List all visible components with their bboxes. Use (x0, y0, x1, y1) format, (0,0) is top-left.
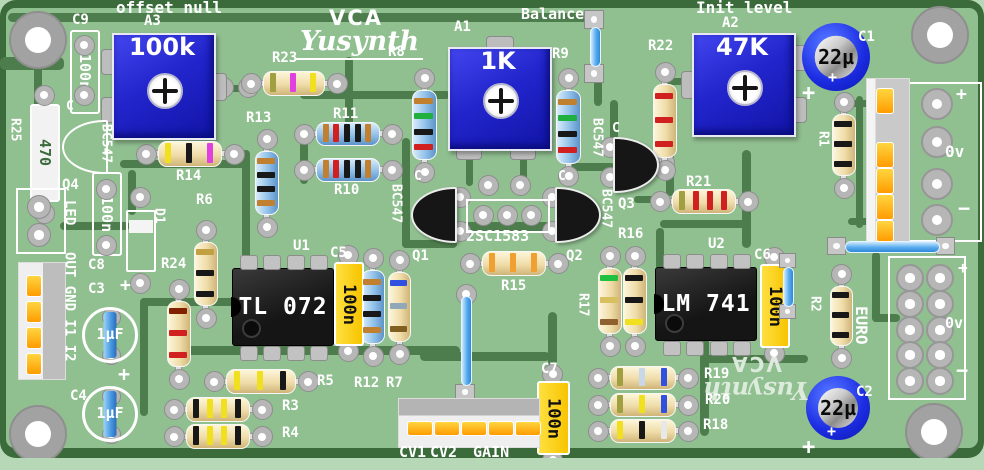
silkscreen-label: C7 (541, 362, 558, 377)
silkscreen-label: U2 (708, 237, 725, 252)
silkscreen-label: + (956, 86, 967, 105)
jumper-wire-J2 (461, 296, 472, 386)
solder-pad (625, 336, 646, 357)
component-value: 100n (98, 196, 116, 232)
capacitor-C5: 100n (334, 262, 364, 346)
resistor-stripe (363, 295, 381, 301)
resistor-stripe (558, 115, 577, 121)
solder-pad (831, 348, 852, 369)
solder-pad (204, 371, 225, 392)
solder-pad (588, 421, 609, 442)
solder-pad (252, 399, 273, 420)
silkscreen-label: R8 (388, 45, 405, 60)
trimmer-value: 100k (112, 33, 212, 61)
silkscreen-label: R13 (246, 111, 271, 126)
silkscreen-label: C (414, 170, 422, 184)
mounting-hole (9, 11, 67, 69)
silkscreen-label: C3 (88, 282, 105, 297)
solder-pad (558, 68, 579, 89)
resistor-stripe (165, 143, 171, 163)
resistor-stripe (344, 160, 350, 178)
silkscreen-label: Balance (521, 7, 584, 23)
silkscreen-label: A1 (454, 20, 471, 35)
solder-pad (389, 250, 410, 271)
resistor-stripe (625, 319, 643, 325)
connector-pin (876, 168, 894, 194)
resistor-stripe (169, 352, 187, 358)
silkscreen-label: R10 (334, 183, 359, 198)
connector-pin (461, 421, 487, 436)
resistor-stripe (693, 191, 699, 210)
resistor-stripe (707, 191, 713, 210)
euro-pad (896, 290, 924, 318)
solder-pad (257, 129, 278, 150)
resistor-stripe (510, 253, 516, 272)
ic-pin (310, 255, 328, 270)
solder-pad (363, 248, 384, 269)
silkscreen-label: CV2 (430, 445, 457, 458)
silkscreen-label: BC547 (590, 118, 604, 157)
trimmer-value: 47K (692, 33, 792, 61)
resistor-stripe (235, 426, 241, 445)
ic-pin (240, 255, 258, 270)
connector-pin (876, 220, 894, 242)
ic-label: LM 741 (656, 291, 756, 317)
solder-pad (294, 124, 315, 145)
connector-pin (488, 421, 514, 436)
resistor-stripe (363, 279, 381, 285)
connector-pin (876, 194, 894, 220)
ic-pin (686, 254, 704, 269)
capacitor-value: 100n (339, 284, 359, 325)
resistor-stripe (414, 129, 433, 135)
silkscreen-label: C8 (88, 258, 105, 273)
connector-pin (26, 301, 42, 323)
solder-pad (588, 395, 609, 416)
component-layer: VCA Yusynth Yusynth VCA 100k1K47KTL 072L… (0, 0, 984, 458)
solder-pad (294, 160, 315, 181)
euro-pad (926, 341, 954, 369)
solder-pad (196, 220, 217, 241)
silkscreen-label: R16 (618, 227, 643, 242)
copper-trace (140, 300, 148, 416)
silkscreen-label: offset null (116, 0, 222, 17)
silkscreen-label: OUT GND I1 I2 (62, 252, 77, 362)
resistor-stripe (193, 426, 199, 445)
euro-pad (896, 367, 924, 395)
silkscreen-label: R20 (705, 393, 730, 408)
solder-pad (74, 35, 95, 56)
ic-pin (733, 254, 751, 269)
ic-U1: TL 072 (232, 268, 334, 346)
resistor-stripe (290, 73, 296, 92)
solder-pad (169, 369, 190, 390)
silkscreen-label: R6 (196, 193, 213, 208)
resistor-stripe (414, 98, 433, 104)
resistor-stripe (355, 124, 361, 142)
solder-pad (473, 205, 494, 226)
resistor-stripe (600, 319, 618, 325)
silkscreen-label: D1 (152, 208, 166, 224)
resistor-stripe (617, 395, 623, 413)
resistor-stripe (221, 426, 227, 445)
solder-pad (252, 426, 273, 447)
connector-pin (434, 421, 460, 436)
resistor-stripe (234, 371, 240, 390)
connector-pin (876, 88, 894, 114)
solder-pad (600, 246, 621, 267)
silkscreen-label: C (612, 122, 620, 136)
silkscreen-label: BC547 (389, 184, 403, 223)
solder-pad (130, 273, 151, 294)
solder-pad (298, 371, 319, 392)
euro-pad (926, 367, 954, 395)
resistor-stripe (832, 332, 849, 338)
resistor-stripe (169, 330, 187, 336)
resistor-stripe (257, 186, 275, 192)
resistor-stripe (558, 131, 577, 137)
resistor-stripe (310, 73, 316, 92)
resistor-stripe (323, 124, 329, 142)
resistor-stripe (489, 253, 495, 272)
solder-pad (382, 160, 403, 181)
resistor-stripe (270, 73, 276, 92)
solder-pad (834, 178, 855, 199)
resistor-stripe (257, 200, 275, 206)
jumper-pad (827, 237, 846, 255)
jumper-wire-J1 (590, 27, 601, 67)
resistor-stripe (196, 249, 214, 255)
resistor-stripe (363, 327, 381, 333)
connector-pin (876, 142, 894, 168)
resistor-stripe (834, 161, 852, 167)
resistor-stripe (832, 292, 849, 298)
diode-band (129, 220, 153, 233)
resistor-stripe (390, 303, 407, 309)
silkscreen-label: A2 (722, 16, 739, 31)
capacitor-C3: 1µF (82, 307, 138, 363)
solder-pad (460, 253, 481, 274)
capacitor-value: 100n (544, 398, 564, 439)
resistor-stripe (207, 143, 213, 163)
connector-pin (26, 353, 42, 375)
silkscreen-label: R17 (576, 293, 590, 316)
euro-pad (896, 264, 924, 292)
silkscreen-label: R18 (703, 418, 728, 433)
solder-pad (169, 279, 190, 300)
solder-pad (521, 205, 542, 226)
resistor-stripe (363, 311, 381, 317)
ic-pin (263, 255, 281, 270)
silkscreen-label: BC547 (99, 124, 113, 163)
resistor-stripe (333, 160, 339, 178)
silkscreen-label: U1 (293, 239, 310, 254)
solder-pad (600, 336, 621, 357)
solder-pad (389, 344, 410, 365)
solder-pad (363, 346, 384, 367)
silkscreen-label: + (118, 364, 130, 385)
ic-pin (240, 346, 258, 361)
silkscreen-label: R1 (816, 131, 830, 147)
silkscreen-label: LED (62, 200, 77, 225)
silkscreen-label: R23 (272, 51, 297, 66)
silkscreen-label: R25 (8, 118, 22, 141)
ic-pin (310, 346, 328, 361)
power-pad (921, 168, 953, 200)
solder-pad (678, 395, 699, 416)
copper-trace (242, 150, 250, 262)
solder-pad (27, 223, 51, 247)
resistor-stripe (639, 421, 645, 439)
ic-pin (287, 255, 305, 270)
jumper-wire-J4 (783, 267, 794, 307)
resistor-stripe (639, 395, 645, 413)
resistor-stripe (193, 399, 199, 418)
solder-pad (382, 124, 403, 145)
resistor-stripe (679, 191, 685, 210)
component-value: 470 (36, 139, 54, 166)
transistor-Q1 (411, 187, 457, 243)
ic-pin (663, 341, 681, 356)
resistor-stripe (257, 371, 263, 390)
resistor-stripe (365, 124, 371, 142)
silkscreen-label: R19 (704, 367, 729, 382)
silkscreen-label: + (828, 70, 837, 86)
silkscreen-label: + (827, 424, 836, 440)
resistor-stripe (207, 399, 213, 418)
silkscreen-label: R22 (648, 39, 673, 54)
copper-trace (420, 352, 550, 361)
copper-trace (594, 80, 602, 106)
silkscreen-label: − (958, 198, 970, 219)
solder-pad (27, 195, 51, 219)
resistor-stripe (390, 326, 407, 332)
resistor-stripe (834, 141, 852, 147)
solder-pad (34, 85, 55, 106)
resistor-stripe (257, 158, 275, 164)
resistor-stripe (625, 275, 643, 281)
silkscreen-label: C9 (72, 13, 89, 28)
resistor-stripe (625, 297, 643, 303)
silkscreen-label: 0v (945, 316, 963, 332)
solder-pad (96, 179, 117, 200)
power-pad (921, 204, 953, 236)
solder-pad (130, 187, 151, 208)
resistor-stripe (617, 421, 623, 439)
resistor-stripe (617, 368, 623, 386)
silkscreen-label: R9 (552, 47, 569, 62)
silkscreen-label: C1 (858, 30, 875, 45)
resistor-stripe (531, 253, 537, 272)
capacitor-value: 22µ (802, 45, 870, 69)
power-pad (921, 88, 953, 120)
silkscreen-label: − (956, 360, 968, 381)
ic-U2: LM 741 (655, 267, 757, 341)
resistor-stripe (661, 368, 667, 386)
ic-dot1 (242, 319, 261, 338)
euro-pad (926, 264, 954, 292)
resistor-stripe (207, 426, 213, 445)
solder-pad (831, 264, 852, 285)
silkscreen-label: C2 (856, 385, 873, 400)
copper-trace (872, 252, 880, 322)
resistor-stripe (558, 147, 577, 153)
resistor-stripe (196, 270, 214, 276)
capacitor-value: 1µF (85, 404, 135, 422)
silkscreen-label: CV1 (399, 445, 426, 458)
silkscreen-label: R2 (808, 296, 822, 312)
silkscreen-label: A3 (144, 14, 161, 29)
resistor-stripe (414, 144, 433, 150)
transistor-Q2 (555, 187, 601, 243)
solder-pad (655, 62, 676, 83)
ic-label: TL 072 (233, 294, 333, 320)
resistor-stripe (661, 395, 667, 413)
trimmer-screw-icon (147, 73, 183, 109)
silkscreen-label: + (802, 82, 815, 105)
jumper-pad (779, 253, 796, 268)
silkscreen-label: C (66, 100, 74, 114)
solder-pad (497, 205, 518, 226)
resistor-stripe (280, 371, 286, 390)
solder-pad (738, 191, 759, 212)
solder-pad (510, 175, 531, 196)
resistor-stripe (558, 99, 577, 105)
silkscreen-label: GAIN (473, 445, 509, 458)
capacitor-value: 1µF (85, 325, 135, 343)
silkscreen-label: R7 (386, 376, 403, 391)
silkscreen-label: R11 (333, 107, 358, 122)
silkscreen-label: C (558, 170, 566, 184)
resistor-stripe (600, 275, 618, 281)
silkscreen-label: Q4 (62, 178, 79, 193)
resistor-stripe (655, 141, 673, 147)
solder-pad (625, 246, 646, 267)
trimmer-screw-icon (727, 70, 763, 106)
trimmer-value: 1K (448, 47, 548, 75)
resistor-stripe (186, 143, 192, 163)
connector-pin (26, 275, 42, 297)
resistor-stripe (661, 421, 667, 439)
resistor-stripe (721, 191, 727, 210)
silkscreen-label: R12 (354, 376, 379, 391)
silkscreen-label: R21 (686, 175, 711, 190)
silkscreen-label: C5 (330, 246, 347, 261)
resistor-stripe (333, 124, 339, 142)
solder-pad (478, 175, 499, 196)
silkscreen-label: + (958, 260, 968, 277)
ic-pin (710, 254, 728, 269)
pcb-board: VCA Yusynth Yusynth VCA 100k1K47KTL 072L… (0, 0, 984, 458)
resistor-stripe (414, 113, 433, 119)
trimmer-screw-icon (483, 83, 519, 119)
silkscreen-label: 0v (945, 144, 964, 161)
resistor-stripe (390, 280, 407, 286)
mounting-hole (9, 405, 67, 458)
solder-pad (327, 73, 348, 94)
silkscreen-label: Q3 (618, 197, 635, 212)
resistor-stripe (365, 160, 371, 178)
silkscreen-label: + (120, 277, 131, 296)
resistor-stripe (355, 160, 361, 178)
solder-pad (96, 235, 117, 256)
jumper-wire-J3 (845, 241, 940, 253)
solder-pad (74, 85, 95, 106)
silkscreen-label: EURO (852, 306, 869, 345)
silkscreen-label: Init level (696, 0, 792, 17)
resistor-stripe (235, 399, 241, 418)
solder-pad (588, 368, 609, 389)
solder-pad (414, 68, 435, 89)
connector-pin (407, 421, 433, 436)
solder-pad (257, 217, 278, 238)
solder-pad (136, 144, 157, 165)
resistor-stripe (834, 121, 852, 127)
silkscreen-label: Q2 (566, 249, 583, 264)
silkscreen-label: C4 (70, 389, 87, 404)
resistor-stripe (832, 312, 849, 318)
connector-pin (26, 327, 42, 349)
solder-pad (224, 144, 245, 165)
silkscreen-label: R14 (176, 169, 201, 184)
resistor-stripe (344, 124, 350, 142)
resistor-stripe (257, 172, 275, 178)
copper-trace (856, 96, 863, 228)
silkscreen-label: R24 (161, 257, 186, 272)
mounting-hole (905, 403, 963, 458)
silkscreen-label: R5 (317, 374, 334, 389)
resistor-stripe (639, 368, 645, 386)
capacitor-C4: 1µF (82, 386, 138, 442)
solder-pad (196, 308, 217, 329)
solder-pad (650, 191, 671, 212)
euro-pad (896, 316, 924, 344)
silkscreen-label: Q1 (412, 249, 429, 264)
ic-pin (287, 346, 305, 361)
resistor-stripe (655, 117, 673, 123)
resistor-stripe (169, 308, 187, 314)
silkscreen-label: R3 (282, 399, 299, 414)
silkscreen-label: + (802, 436, 815, 458)
cv-gain-connector (398, 398, 540, 448)
out-connector (18, 262, 66, 380)
connector-pin (515, 421, 541, 436)
copper-trace (660, 220, 745, 228)
resistor-stripe (600, 297, 618, 303)
capacitor-C7: 100n (537, 381, 570, 455)
resistor-stripe (323, 160, 329, 178)
silkscreen-label: C6 (754, 248, 771, 263)
ic-pin (663, 254, 681, 269)
resistor-stripe (196, 291, 214, 297)
resistor-stripe (655, 93, 673, 99)
solder-pad (164, 426, 185, 447)
solder-pad (834, 92, 855, 113)
silkscreen-label: 2SC1583 (466, 229, 529, 245)
silkscreen-label: R15 (501, 279, 526, 294)
solder-pad (241, 73, 262, 94)
solder-pad (678, 421, 699, 442)
euro-pad (896, 341, 924, 369)
pcb-screenshot: { "logo": {"line1": "VCA", "line2": "Yus… (0, 0, 984, 470)
mounting-hole (911, 6, 969, 64)
solder-pad (164, 399, 185, 420)
silkscreen-label: R4 (282, 426, 299, 441)
resistor-stripe (221, 399, 227, 418)
ic-pin (263, 346, 281, 361)
solder-pad (678, 368, 699, 389)
silkscreen-label: BC547 (599, 189, 613, 228)
